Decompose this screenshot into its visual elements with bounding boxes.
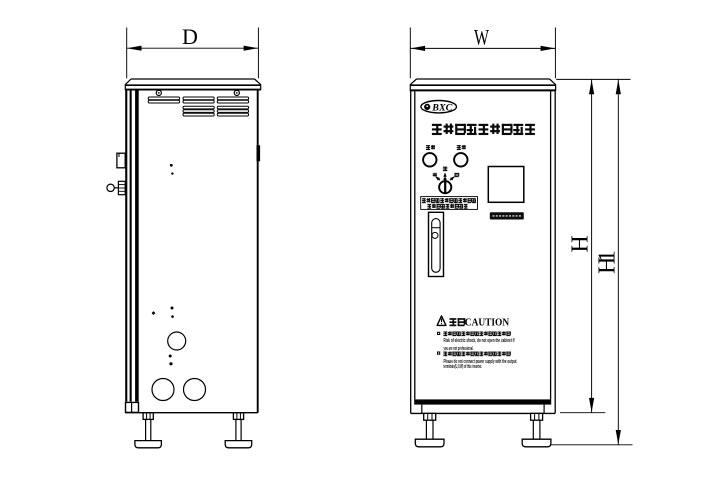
svg-text:W: W	[474, 24, 489, 49]
svg-text:D: D	[182, 24, 198, 49]
svg-text:H: H	[568, 235, 594, 252]
svg-text:BXC: BXC	[431, 102, 453, 113]
svg-text:terminals(U,V,W) of this inver: terminals(U,V,W) of this inverter.	[444, 364, 483, 370]
svg-text:you are not professional.: you are not professional.	[444, 346, 474, 352]
svg-text:CAUTION: CAUTION	[465, 317, 509, 329]
svg-text:Risk of electric shock, do not: Risk of electric shock, do not open the …	[444, 338, 515, 344]
svg-text:H1: H1	[595, 250, 621, 274]
